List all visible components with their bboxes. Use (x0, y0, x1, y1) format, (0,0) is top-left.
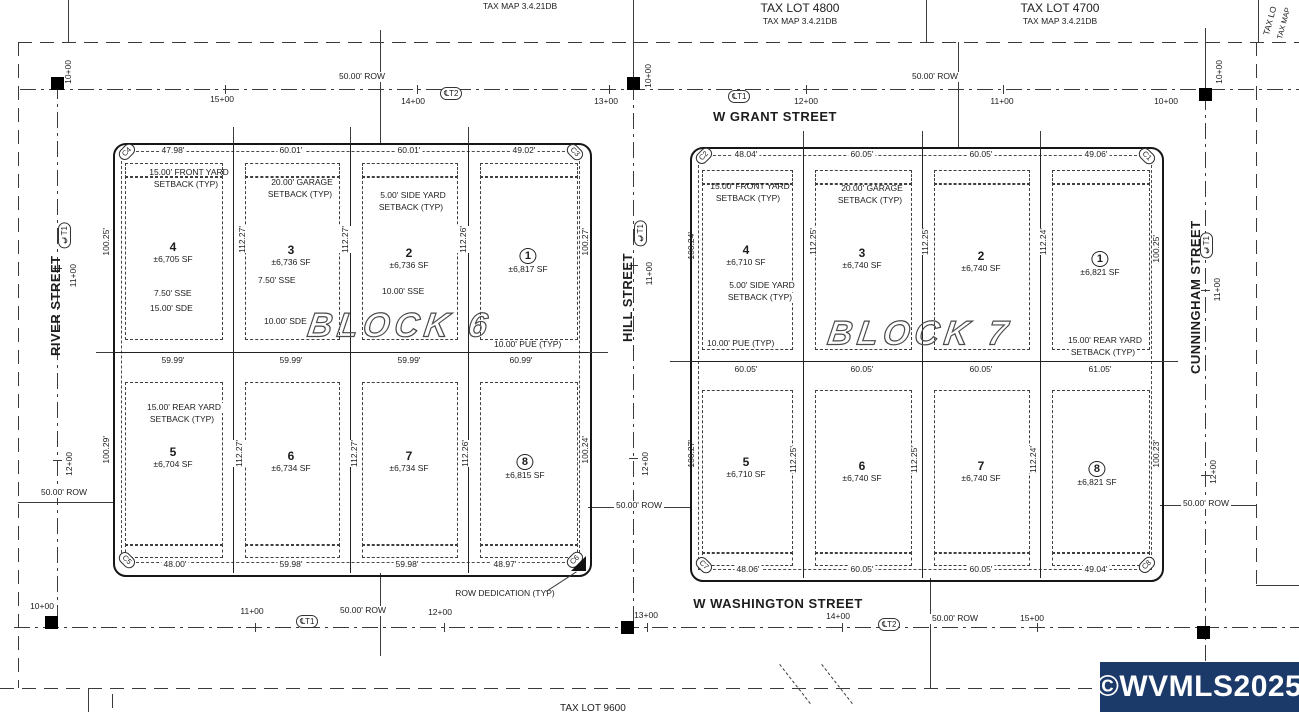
washington-centerline (14, 627, 1299, 628)
tax-lot-divider (926, 0, 927, 42)
dim-label: 112.25' (786, 446, 800, 473)
lot-area: ±6,736 SF (271, 257, 310, 267)
easement-note: 15.00' SDE (148, 304, 195, 314)
match-line (821, 664, 853, 704)
lot-label: 1±6,821 SF (1080, 249, 1119, 277)
dim-label: 59.99' (396, 356, 423, 366)
easement-note: 10.00' SSE (380, 287, 426, 297)
station-label: 15+00 (210, 95, 234, 105)
dim-leader (922, 131, 923, 147)
dim-label: 100.29' (101, 436, 111, 464)
street-name-grant: W GRANT STREET (713, 110, 837, 125)
plat-drawing: TAX MAP 3.4.21DB TAX LOT 4800 TAX MAP 3.… (0, 0, 1299, 712)
lot-number-circled: 8 (1088, 461, 1105, 477)
dim-label: 48.00' (162, 560, 189, 570)
setback-note: 15.00' FRONT YARD (710, 182, 790, 192)
tax-map-label: TAX MAP 3.4.21DB (483, 2, 557, 12)
dim-label: 60.05' (849, 150, 876, 160)
tax-map-label-partial: TAX MAP (1276, 7, 1293, 41)
centerline-tag-t2: ℄T2 (878, 618, 900, 631)
lot-label: 2±6,740 SF (961, 249, 1000, 273)
dim-label: 60.05' (968, 565, 995, 575)
dim-label: 60.05' (968, 150, 995, 160)
setback-note: 5.00' SIDE YARD (727, 281, 797, 291)
lot-line (233, 143, 234, 573)
dim-label: 100.23' (1151, 440, 1161, 468)
lot-line (113, 352, 588, 353)
station-tick (647, 623, 648, 632)
tax-lot-divider (633, 0, 634, 78)
dim-leader (233, 127, 234, 143)
setback-note: SETBACK (TYP) (268, 190, 332, 200)
dim-label: 48.06' (735, 565, 762, 575)
dim-label: 48.04' (733, 150, 760, 160)
station-label: 14+00 (401, 97, 425, 107)
setback-note: 15.00' FRONT YARD (149, 168, 229, 178)
lot-number-circled: 8 (516, 454, 533, 470)
lot-label: 6±6,734 SF (271, 449, 310, 473)
setback-note: SETBACK (TYP) (154, 180, 218, 190)
parcel-line (68, 0, 69, 42)
station-label: 11+00 (1212, 278, 1222, 301)
lot-line-stub (96, 352, 113, 353)
lot-line-stub (588, 352, 608, 353)
easement-note: 7.50' SSE (152, 289, 194, 299)
station-label: 11+00 (644, 262, 654, 285)
lot-area: ±6,710 SF (726, 257, 765, 267)
setback-note: 20.00' GARAGE (841, 184, 903, 194)
lot-label: 5±6,710 SF (726, 455, 765, 479)
dim-label: 112.24' (1026, 446, 1040, 473)
lot-number: 4 (726, 243, 765, 257)
lot-line (1040, 147, 1041, 578)
station-marker (1199, 88, 1212, 101)
north-property-line (18, 42, 1299, 43)
setback-note: 15.00' REAR YARD (145, 403, 223, 413)
lot-number: 4 (153, 240, 192, 254)
row-dim-line (380, 30, 381, 143)
dim-label: 59.99' (160, 356, 187, 366)
station-label: 12+00 (640, 452, 650, 476)
lot-number-circled: 1 (519, 248, 536, 264)
dim-label: 112.25' (907, 446, 921, 473)
station-label: 12+00 (794, 97, 818, 107)
row-width-label: 50.00' ROW (39, 488, 89, 498)
lot-label: 3±6,736 SF (271, 243, 310, 267)
setback-note: 5.00' SIDE YARD (380, 191, 446, 201)
row-dim-line (930, 578, 931, 688)
row-dedication-wedge (571, 556, 586, 571)
dim-label: 100.24' (686, 232, 696, 260)
match-line (779, 664, 811, 704)
dim-label: 112.27' (235, 226, 249, 253)
street-name-washington: W WASHINGTON STREET (693, 597, 863, 612)
easement-note: 10.00' SDE (262, 317, 309, 327)
lot-line (803, 147, 804, 578)
street-name-river: RIVER STREET (48, 246, 63, 356)
lot-area: ±6,740 SF (842, 260, 881, 270)
lot-area: ±6,705 SF (153, 254, 192, 264)
garage-setback-strip (125, 544, 223, 558)
lot-line (350, 143, 351, 573)
dim-label: 112.26' (458, 440, 472, 467)
setback-note: SETBACK (TYP) (838, 196, 902, 206)
lot-number: 6 (842, 459, 881, 473)
lot-label: 8±6,815 SF (505, 452, 544, 480)
lot-area: ±6,704 SF (153, 459, 192, 469)
tax-lot-label: TAX LOT 4800 (761, 2, 840, 16)
lot-number: 3 (271, 243, 310, 257)
station-label: 10+00 (63, 60, 73, 84)
lot-area: ±6,736 SF (389, 260, 428, 270)
dim-label: 100.25' (101, 228, 111, 256)
east-property-line (1256, 42, 1257, 585)
dim-label: 100.27' (580, 228, 590, 256)
dim-label: 48.97' (492, 560, 519, 570)
row-width-label: 50.00' ROW (930, 614, 980, 624)
garage-setback-strip (480, 544, 578, 558)
lot-number-circled: 1 (1091, 251, 1108, 267)
tax-map-label: TAX MAP 3.4.21DB (1023, 17, 1097, 27)
easement-note: 10.00' PUE (TYP) (492, 340, 563, 350)
lot-area: ±6,740 SF (842, 473, 881, 483)
dim-label: 60.05' (733, 365, 760, 375)
station-tick (225, 85, 226, 94)
row-dim-line (958, 42, 959, 147)
dim-label: 60.05' (849, 565, 876, 575)
lot-label: 4±6,710 SF (726, 243, 765, 267)
lot-label: 6±6,740 SF (842, 459, 881, 483)
dim-label: 49.04' (1083, 565, 1110, 575)
wvmls-watermark: ©WVMLS2025 (1100, 662, 1299, 712)
dim-label: 112.27' (232, 440, 246, 467)
garage-setback-strip (245, 544, 340, 558)
dim-label: 60.05' (849, 365, 876, 375)
dim-label: 60.01' (396, 146, 423, 156)
station-tick (444, 623, 445, 632)
lot-label: 5±6,704 SF (153, 445, 192, 469)
dim-label: 112.27' (338, 226, 352, 253)
station-label: 15+00 (1020, 614, 1044, 624)
station-label: 12+00 (1208, 460, 1218, 484)
station-label: 11+00 (990, 97, 1013, 107)
station-label: 13+00 (634, 611, 658, 621)
station-label: 12+00 (428, 608, 452, 618)
lot-area: ±6,817 SF (508, 264, 547, 274)
west-property-line (18, 42, 19, 688)
station-tick (842, 623, 843, 632)
station-marker (45, 616, 58, 629)
row-dedication-note: ROW DEDICATION (TYP) (455, 589, 554, 599)
garage-setback-strip (362, 544, 458, 558)
station-marker (627, 77, 640, 90)
row-dim-line (18, 502, 113, 503)
lot-line (690, 361, 1160, 362)
centerline-tag-t1: ℄T1 (58, 222, 71, 248)
lot-line (922, 147, 923, 578)
lot-area: ±6,734 SF (271, 463, 310, 473)
row-width-label: 50.00' ROW (337, 72, 387, 82)
lot-number: 5 (153, 445, 192, 459)
dim-label: 112.25' (918, 228, 932, 255)
station-label: 11+00 (68, 264, 78, 287)
station-tick (255, 623, 256, 632)
block-title: BLOCK 7 (825, 315, 1015, 354)
setback-note: 15.00' REAR YARD (1066, 336, 1144, 346)
lot-number: 7 (961, 459, 1000, 473)
station-marker (621, 621, 634, 634)
lot-area: ±6,821 SF (1080, 267, 1119, 277)
dim-leader (468, 127, 469, 143)
station-label: 14+00 (826, 612, 850, 622)
setback-note: 20.00' GARAGE (271, 178, 333, 188)
lot-number: 7 (389, 449, 428, 463)
dim-label: 49.06' (1083, 150, 1110, 160)
hill-centerline (633, 84, 634, 626)
dim-label: 59.99' (278, 356, 305, 366)
lot-label: 7±6,740 SF (961, 459, 1000, 483)
parcel-line (1258, 0, 1259, 42)
lot-number: 2 (961, 249, 1000, 263)
station-tick (609, 85, 610, 94)
block-title: BLOCK 6 (305, 307, 495, 346)
lot-line-stub (670, 361, 690, 362)
dim-label: 112.27' (347, 440, 361, 467)
station-tick (1003, 85, 1004, 94)
lot-line (468, 143, 469, 573)
station-tick (806, 85, 807, 94)
setback-note: SETBACK (TYP) (379, 203, 443, 213)
station-label: 13+00 (594, 97, 618, 107)
centerline-tag-t1: ℄T1 (296, 615, 318, 628)
lot-label: 3±6,740 SF (842, 246, 881, 270)
station-label: 10+00 (30, 602, 54, 612)
dim-label: 60.99' (508, 356, 535, 366)
lot-number: 5 (726, 455, 765, 469)
lot-number: 2 (389, 246, 428, 260)
lot-area: ±6,740 SF (961, 263, 1000, 273)
centerline-tag-t1: ℄T1 (728, 90, 750, 103)
centerline-tag-t1: ℄T1 (634, 220, 647, 246)
setback-note: SETBACK (TYP) (148, 415, 216, 425)
grant-centerline (20, 89, 1299, 90)
station-label: 11+00 (240, 607, 263, 617)
station-label: 10+00 (1154, 97, 1178, 107)
dim-label: 60.05' (968, 365, 995, 375)
dim-label: 59.98' (394, 560, 421, 570)
lot-label: 4±6,705 SF (153, 240, 192, 264)
row-width-label: 50.00' ROW (1181, 499, 1231, 509)
lot-label: 1±6,817 SF (508, 246, 547, 274)
dim-label: 59.98' (278, 560, 305, 570)
lot-area: ±6,815 SF (505, 470, 544, 480)
lot-label: 8±6,821 SF (1077, 459, 1116, 487)
easement-note: 10.00' PUE (TYP) (705, 339, 776, 349)
station-tick (629, 458, 638, 459)
station-label: 10+00 (1214, 60, 1224, 84)
parcel-line (1205, 28, 1206, 88)
tax-lot-label-partial: TAX LOT 9600 (560, 703, 626, 712)
lot-area: ±6,821 SF (1077, 477, 1116, 487)
dim-label: 61.05' (1087, 365, 1114, 375)
dim-label: 100.27' (686, 440, 696, 468)
street-name-hill: HILL STREET (620, 242, 635, 342)
easement-note: 7.50' SSE (256, 276, 298, 286)
dim-leader (350, 127, 351, 143)
dim-label: 49.02' (511, 146, 538, 156)
station-tick (417, 85, 418, 94)
cunningham-centerline (1205, 94, 1206, 662)
station-label: 12+00 (64, 452, 74, 476)
station-tick (53, 460, 62, 461)
dim-label: 112.24' (1036, 228, 1050, 255)
dim-label: 112.26' (456, 226, 470, 253)
lot-number: 6 (271, 449, 310, 463)
station-tick (1037, 623, 1038, 632)
row-width-label: 50.00' ROW (338, 606, 388, 616)
row-width-label: 50.00' ROW (910, 72, 960, 82)
dim-label: 100.24' (580, 436, 590, 464)
dim-leader (1040, 131, 1041, 147)
dim-label: 100.25' (1151, 235, 1161, 263)
setback-note: SETBACK (TYP) (726, 293, 794, 303)
tax-lot-label: TAX LOT 4700 (1021, 2, 1100, 16)
setback-note: SETBACK (TYP) (1069, 348, 1137, 358)
centerline-tag-t2: ℄T2 (440, 87, 462, 100)
lot-line-stub (1160, 361, 1178, 362)
lot-number: 3 (842, 246, 881, 260)
tax-map-label: TAX MAP 3.4.21DB (763, 17, 837, 27)
station-marker (1197, 626, 1210, 639)
parcel-line (112, 694, 113, 712)
dim-label: 60.01' (278, 146, 305, 156)
lot-area: ±6,710 SF (726, 469, 765, 479)
dim-label: 112.25' (806, 228, 820, 255)
lot-label: 7±6,734 SF (389, 449, 428, 473)
east-parcel-line (1256, 585, 1299, 586)
station-label: 10+00 (643, 64, 653, 88)
lot-area: ±6,734 SF (389, 463, 428, 473)
dim-label: 47.98' (160, 146, 187, 156)
centerline-tag-t1: ℄T1 (1200, 232, 1213, 258)
lot-label: 2±6,736 SF (389, 246, 428, 270)
parcel-line (88, 688, 89, 712)
setback-note: SETBACK (TYP) (716, 194, 780, 204)
lot-area: ±6,740 SF (961, 473, 1000, 483)
row-width-label: 50.00' ROW (614, 501, 664, 511)
dim-leader (803, 131, 804, 147)
